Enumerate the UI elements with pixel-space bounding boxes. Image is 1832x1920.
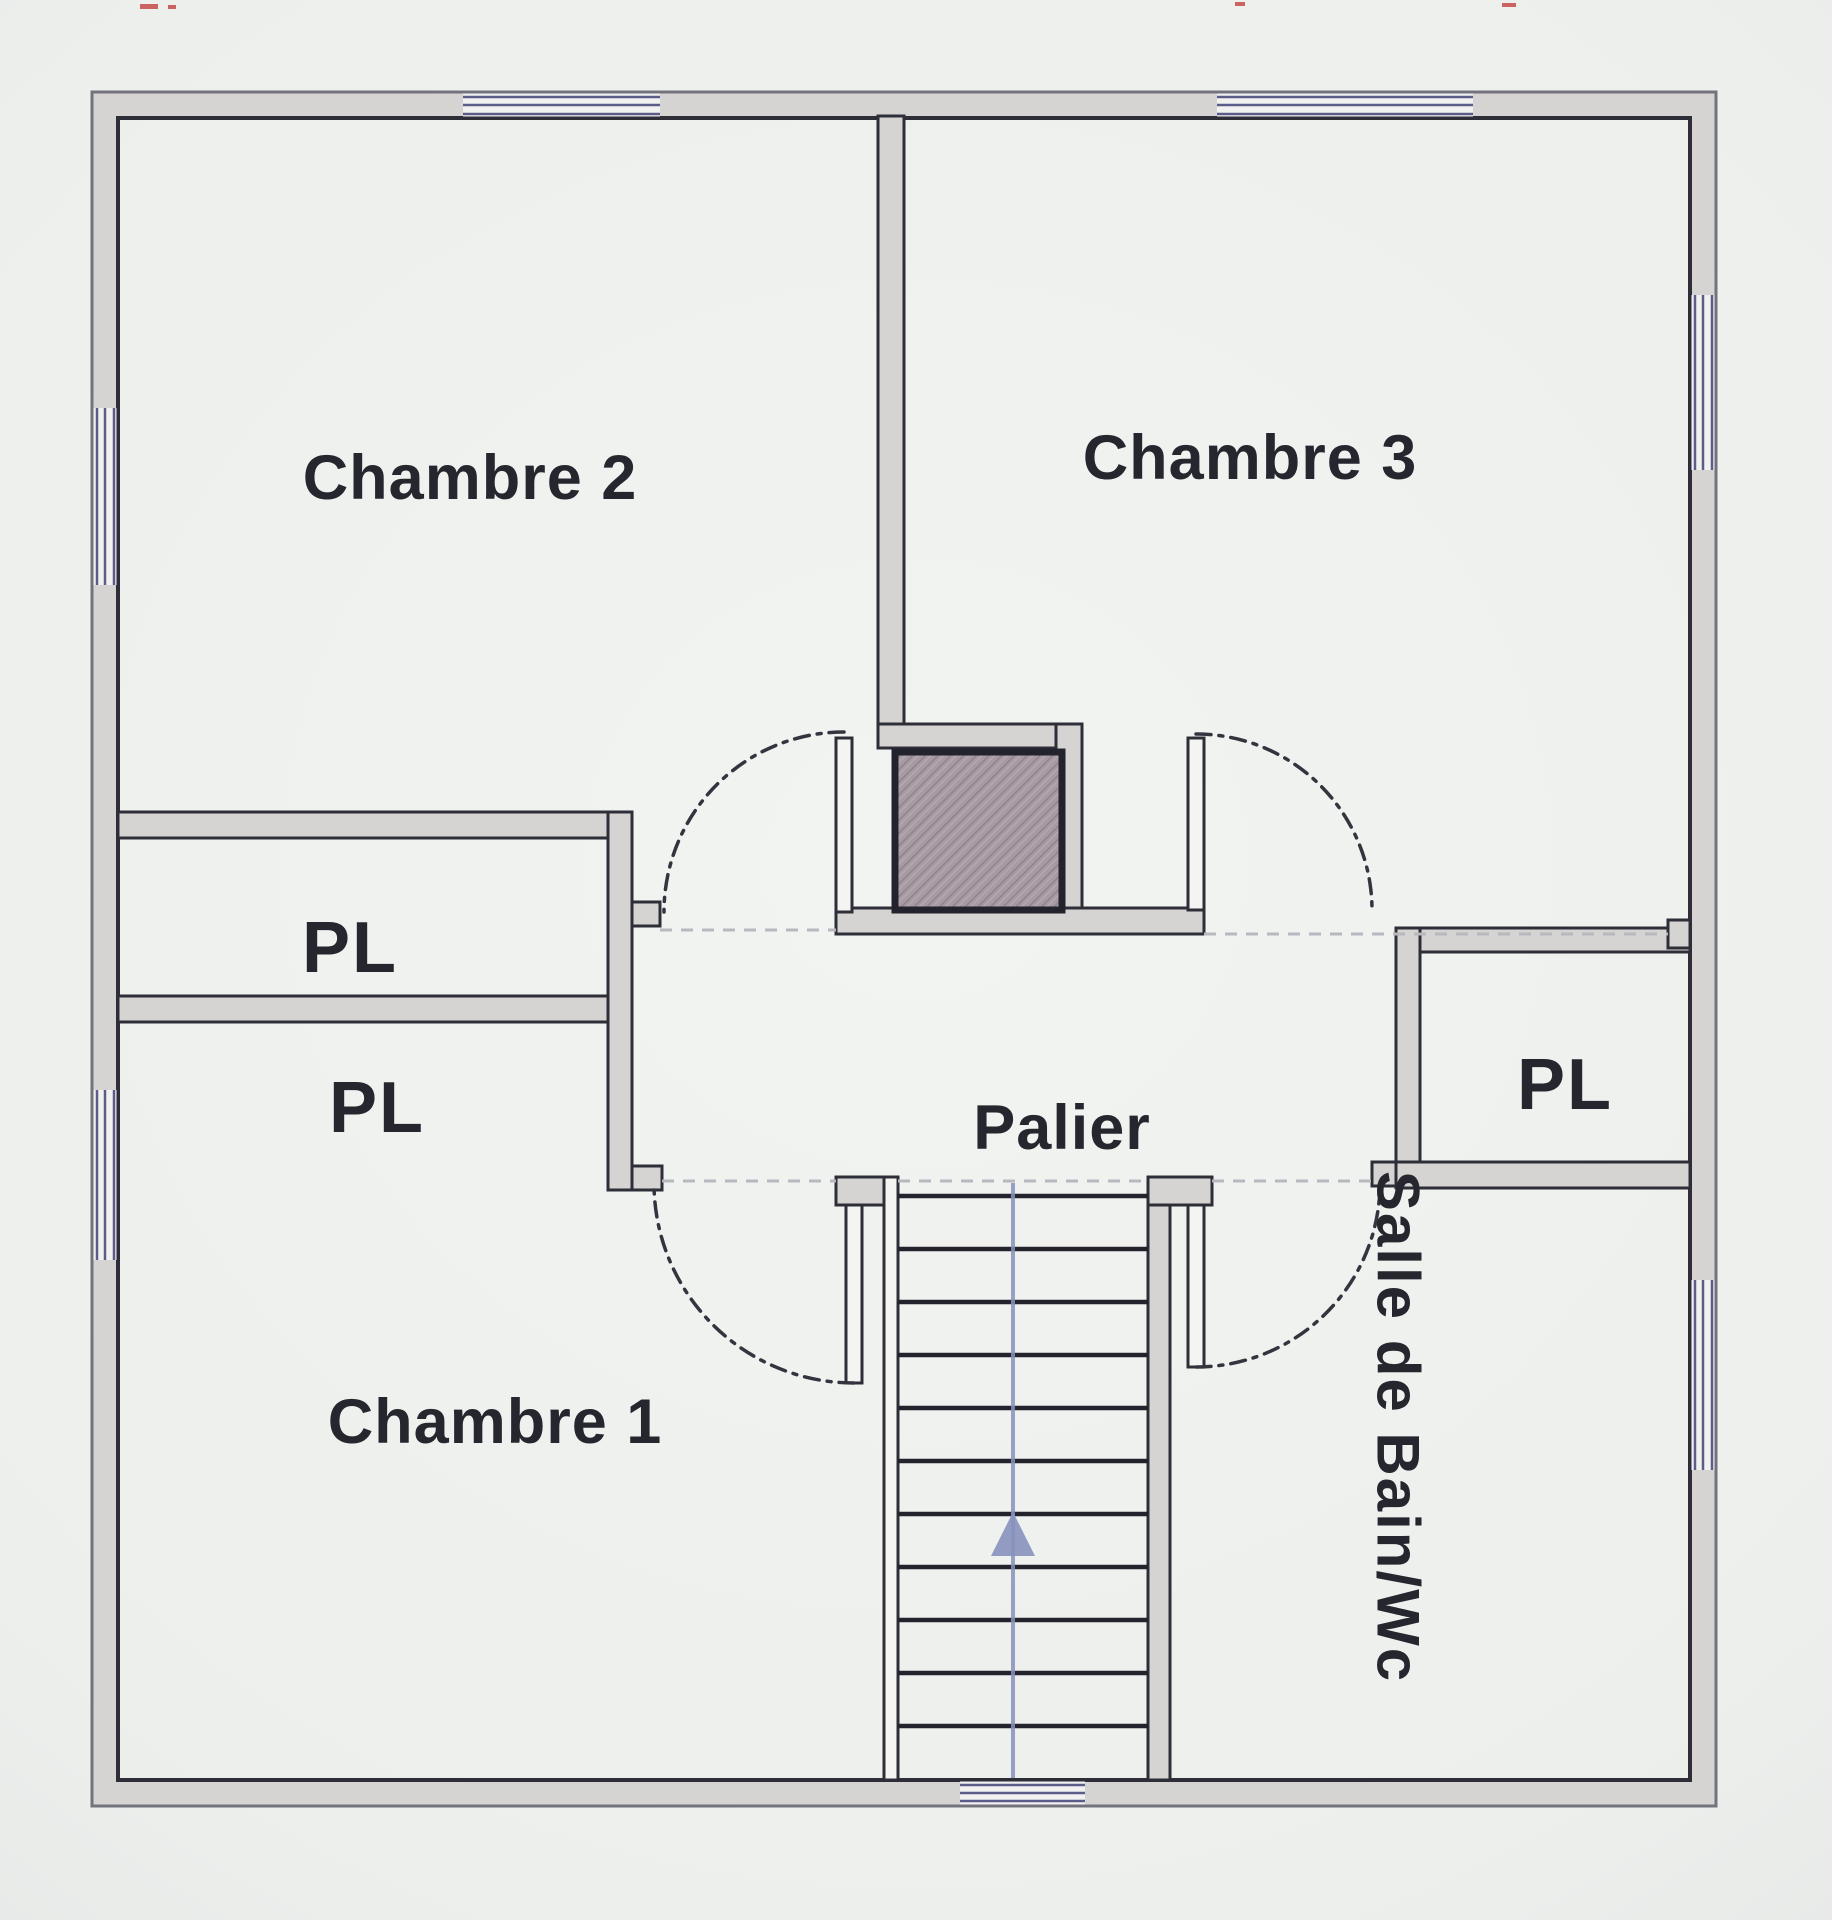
door-arc-chambre2 <box>664 732 844 912</box>
photo-artifacts <box>140 2 1516 9</box>
room-label-chambre-1: Chambre 1 <box>328 1386 663 1458</box>
staircase <box>884 1177 1148 1780</box>
window-left-upper <box>94 408 117 585</box>
window-bottom <box>960 1782 1085 1805</box>
door-leaf-chambre1 <box>846 1205 862 1383</box>
stair-direction-arrow <box>991 1512 1035 1556</box>
wall-pl-left-bottom <box>118 996 632 1022</box>
door-leaf-chambre2 <box>836 738 852 912</box>
floorplan-photo: Chambre 2 Chambre 3 Chambre 1 Palier PL … <box>0 0 1832 1920</box>
door-leaf-chambre3 <box>1188 738 1204 910</box>
wall-pl-right-bottom <box>1396 1162 1690 1188</box>
room-label-chambre-2: Chambre 2 <box>303 442 638 514</box>
wall-divider-ch2-ch3 <box>878 116 904 748</box>
door-arc-salle-de-bain <box>1196 1183 1380 1367</box>
room-label-pl-right: PL <box>1517 1044 1613 1126</box>
room-label-chambre-3: Chambre 3 <box>1083 422 1418 494</box>
wall-stub-right <box>1668 920 1690 948</box>
floorplan-drawing <box>0 0 1832 1920</box>
wall-pl-right-top <box>1396 928 1690 952</box>
jamb-stub-left <box>836 1177 888 1205</box>
room-label-pl-left-upper: PL <box>302 907 398 989</box>
room-label-palier: Palier <box>973 1092 1151 1164</box>
wall-pl-right-left <box>1396 928 1420 1186</box>
door-leaf-salle-de-bain <box>1188 1205 1204 1367</box>
room-label-salle-de-bain: Salle de Bain/Wc <box>1364 1171 1433 1683</box>
jamb-stub-right <box>1148 1177 1212 1205</box>
room-label-pl-left-lower: PL <box>329 1067 425 1149</box>
window-left-lower <box>94 1090 117 1260</box>
door-arc-chambre3 <box>1196 734 1372 910</box>
window-right-upper <box>1692 295 1715 470</box>
window-top-left <box>463 94 660 117</box>
window-right-lower <box>1692 1280 1715 1470</box>
wall-chimney-shelf <box>878 724 1082 748</box>
wall-stair-right <box>1148 1177 1170 1780</box>
door-arc-chambre1 <box>654 1183 854 1383</box>
wall-palier-left-foot <box>632 1166 662 1190</box>
stair-left-wall <box>884 1177 898 1780</box>
wall-pl-left-top <box>118 812 632 838</box>
window-top-right <box>1217 94 1473 117</box>
chimney-flue <box>895 752 1062 910</box>
wall-palier-left <box>608 812 632 1190</box>
stair-treads <box>898 1196 1148 1726</box>
wall-palier-left-nub <box>632 902 660 926</box>
